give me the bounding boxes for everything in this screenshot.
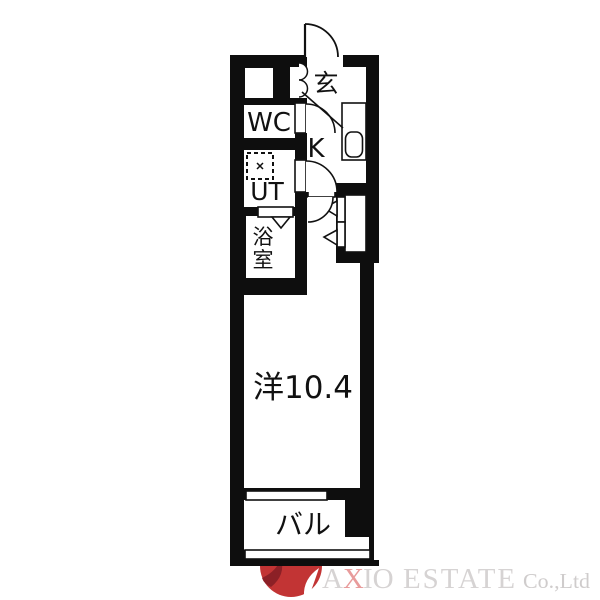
floorplan-page: 玄 WC K UT 浴 室 洋10.4 バル A X IO ESTATE Co.… — [0, 0, 600, 600]
kitchen-sink-icon — [346, 132, 363, 157]
balcony-window — [246, 491, 327, 500]
closet-door-leaf-2 — [337, 222, 345, 247]
label-ut: UT — [250, 177, 284, 206]
balcony-floor-right — [345, 537, 369, 550]
logo-letter-a: A — [322, 563, 343, 595]
closet-body — [345, 195, 366, 252]
bath-door-bar — [258, 207, 293, 217]
ut-door-leaf — [295, 160, 306, 192]
floorplan-canvas: 玄 WC K UT 浴 室 洋10.4 バル A X IO ESTATE Co.… — [0, 0, 600, 600]
logo-brand-axio: A X IO — [322, 563, 394, 595]
closet-door-leaf-1 — [337, 197, 345, 222]
room-main-floor-upper — [307, 263, 360, 295]
label-balcony: バル — [275, 508, 331, 541]
wall-step-gutter — [374, 263, 379, 560]
label-genkan: 玄 — [313, 69, 338, 98]
label-wc: WC — [247, 108, 291, 138]
washing-machine-pan-icon — [247, 153, 273, 179]
label-kitchen: K — [307, 134, 325, 164]
label-main-room: 洋10.4 — [253, 370, 353, 406]
wc-door-leaf — [295, 103, 306, 133]
logo-brand-tail: Co.,Ltd — [523, 569, 591, 593]
axio-logo-text: A X IO ESTATE Co.,Ltd — [322, 563, 591, 595]
balcony-railing — [245, 550, 370, 559]
room-pipe-space — [245, 68, 273, 98]
logo-letter-x: X — [343, 563, 364, 595]
logo-brand-estate: ESTATE — [403, 563, 517, 595]
label-bath-2: 室 — [253, 248, 274, 272]
logo-letters-io: IO — [363, 563, 394, 595]
label-bath-1: 浴 — [253, 225, 274, 249]
